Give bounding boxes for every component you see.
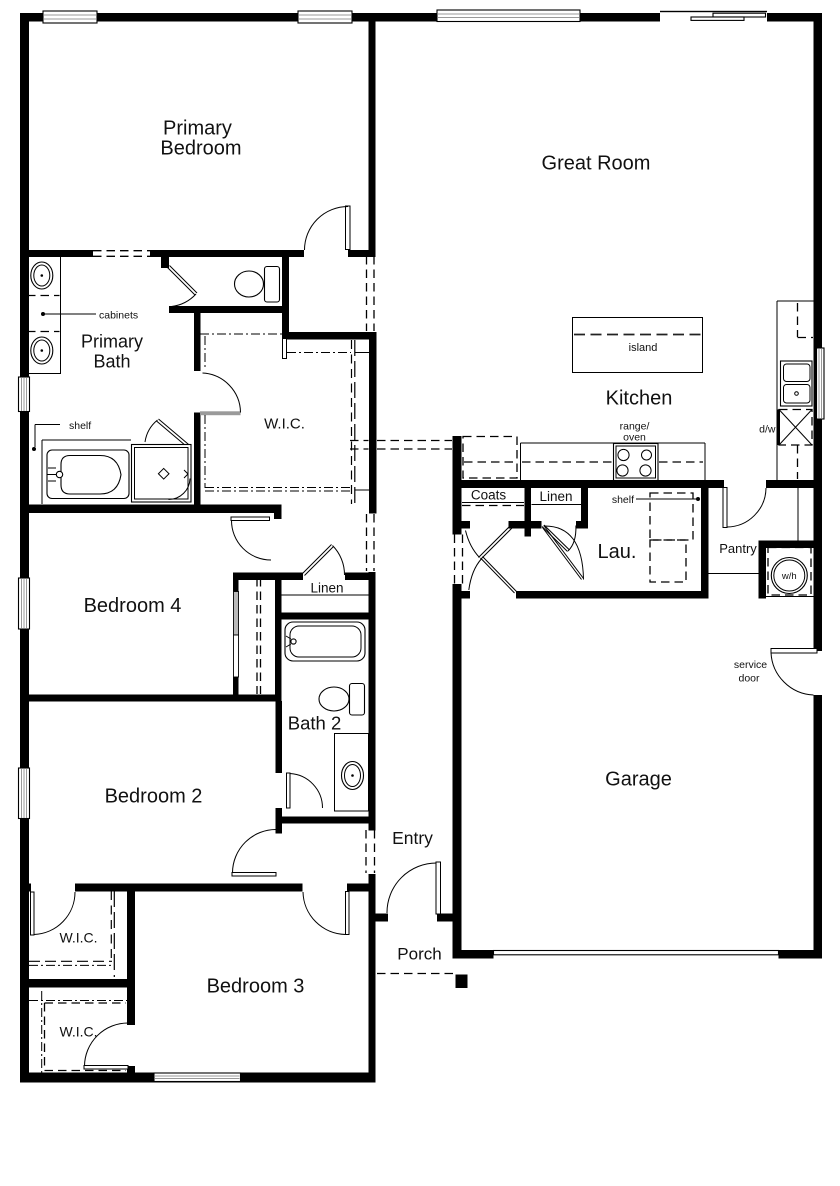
svg-text:Kitchen: Kitchen xyxy=(606,388,673,410)
svg-text:W.I.C.: W.I.C. xyxy=(59,930,97,946)
svg-text:d/w: d/w xyxy=(759,424,776,436)
svg-text:W.I.C.: W.I.C. xyxy=(59,1024,97,1040)
svg-text:Bath: Bath xyxy=(93,352,130,372)
svg-text:Primary: Primary xyxy=(163,118,232,140)
svg-text:Linen: Linen xyxy=(539,489,572,504)
svg-text:W.I.C.: W.I.C. xyxy=(264,416,305,433)
svg-text:Coats: Coats xyxy=(471,488,507,503)
svg-text:Garage: Garage xyxy=(605,769,672,791)
svg-text:Bedroom 2: Bedroom 2 xyxy=(105,786,203,808)
svg-text:shelf: shelf xyxy=(612,494,634,506)
svg-text:island: island xyxy=(629,342,658,354)
svg-text:w/h: w/h xyxy=(781,571,797,582)
svg-text:Bedroom 3: Bedroom 3 xyxy=(207,976,305,998)
svg-text:Bedroom 4: Bedroom 4 xyxy=(84,595,182,617)
svg-text:oven: oven xyxy=(623,432,646,444)
svg-text:shelf: shelf xyxy=(69,420,91,432)
svg-text:service: service xyxy=(734,659,767,671)
svg-text:Pantry: Pantry xyxy=(719,541,757,556)
svg-text:Linen: Linen xyxy=(310,581,343,596)
svg-text:Bedroom: Bedroom xyxy=(160,138,241,160)
svg-text:Bath 2: Bath 2 xyxy=(288,713,342,734)
svg-text:Entry: Entry xyxy=(392,828,433,848)
svg-text:cabinets: cabinets xyxy=(99,310,138,322)
svg-text:Lau.: Lau. xyxy=(598,541,637,563)
svg-text:Primary: Primary xyxy=(81,332,143,352)
svg-text:door: door xyxy=(738,673,760,685)
svg-text:Porch: Porch xyxy=(397,945,441,964)
svg-text:Great Room: Great Room xyxy=(542,153,651,175)
